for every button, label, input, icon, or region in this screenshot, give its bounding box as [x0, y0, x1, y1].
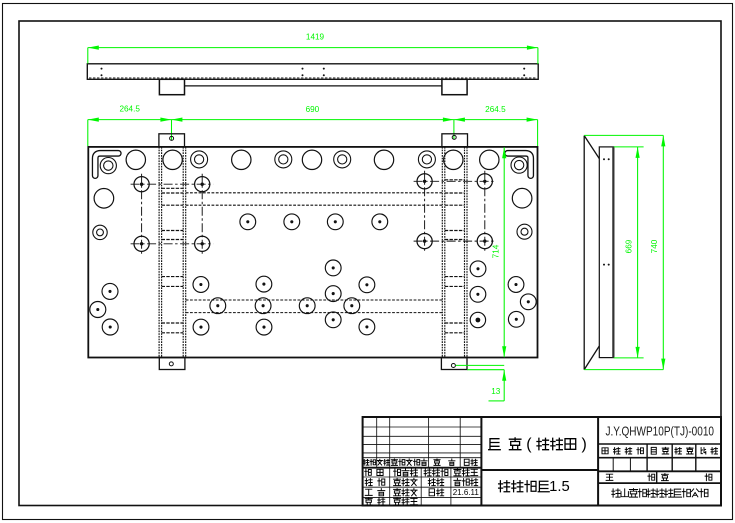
svg-text:1.5: 1.5 [549, 479, 570, 495]
svg-text:740: 740 [650, 239, 659, 253]
svg-text:669: 669 [625, 239, 634, 253]
svg-text:21.6.11: 21.6.11 [453, 488, 480, 497]
svg-text:264.5: 264.5 [485, 105, 506, 114]
svg-text:): ) [581, 436, 586, 453]
svg-text:264.5: 264.5 [119, 104, 140, 113]
svg-text:13: 13 [491, 387, 501, 396]
svg-text:(: ( [526, 436, 532, 453]
svg-text:J.Y.QHWP10P(TJ)-0010: J.Y.QHWP10P(TJ)-0010 [606, 424, 715, 439]
svg-text:1419: 1419 [306, 33, 325, 42]
svg-text:690: 690 [306, 105, 320, 114]
svg-text:714: 714 [491, 244, 500, 258]
